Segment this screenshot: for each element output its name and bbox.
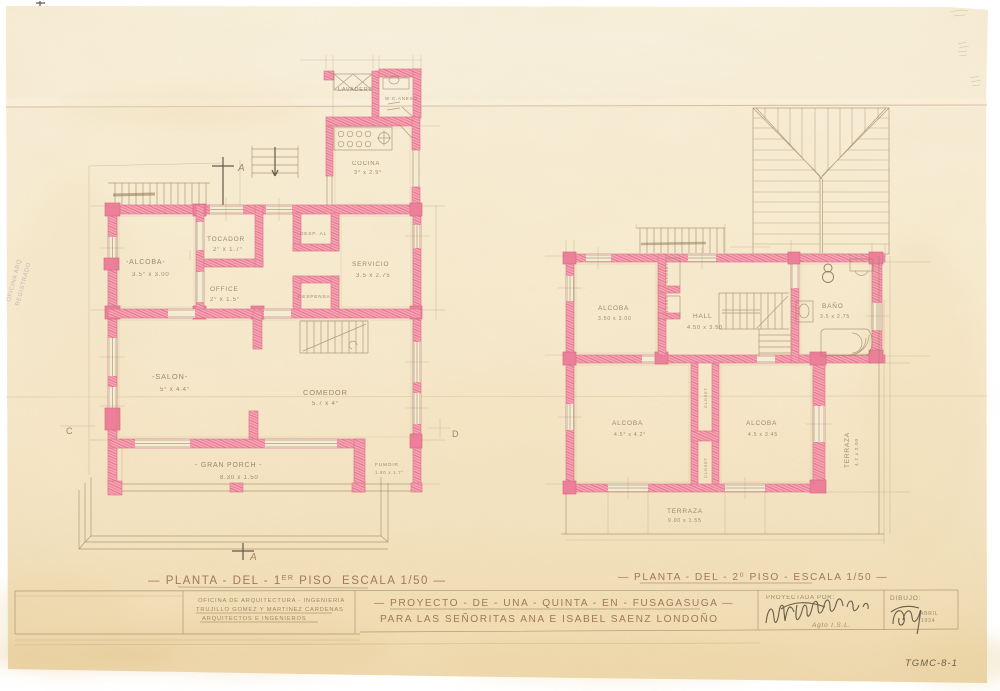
svg-text:9.00 x 1.55: 9.00 x 1.55	[668, 518, 702, 524]
svg-text:PARA LAS SEÑORITAS ANA E ISABE: PARA LAS SEÑORITAS ANA E ISABEL SAENZ LO…	[380, 612, 719, 625]
svg-text:2° x 1.7°: 2° x 1.7°	[213, 247, 243, 253]
svg-text:4.5 x 3.45: 4.5 x 3.45	[748, 432, 778, 438]
svg-text:SERVICIO: SERVICIO	[352, 261, 389, 268]
svg-text:CLOSET: CLOSET	[703, 387, 708, 408]
svg-text:2° x 1.5°: 2° x 1.5°	[210, 297, 240, 303]
svg-text:1934: 1934	[921, 618, 935, 624]
svg-text:HALL: HALL	[693, 313, 712, 320]
svg-text:TRUJILLO GOMEZ Y MARTINEZ CARD: TRUJILLO GOMEZ Y MARTINEZ CARDENAS	[196, 607, 344, 613]
svg-text:3.5° x 3.00: 3.5° x 3.00	[132, 272, 170, 278]
svg-text:PROYECTADA POR:: PROYECTADA POR:	[766, 595, 835, 601]
svg-text:COMEDOR: COMEDOR	[303, 388, 348, 397]
svg-text:Agto I.S.L.: Agto I.S.L.	[811, 622, 851, 629]
svg-text:— PLANTA - DEL - 1ER PISO ESC: — PLANTA - DEL - 1ER PISO ESCALA 1/50 —	[148, 575, 447, 587]
svg-text:ARQUITECTOS E INGENIEROS: ARQUITECTOS E INGENIEROS	[202, 616, 306, 622]
svg-text:ALCOBA: ALCOBA	[598, 305, 629, 312]
svg-text:4.50 x 3.50: 4.50 x 3.50	[687, 325, 723, 331]
svg-text:OFFICE: OFFICE	[210, 286, 239, 293]
svg-text:BAÑO: BAÑO	[822, 301, 844, 310]
svg-text:DESPENSA: DESPENSA	[298, 294, 331, 300]
svg-text:8.30 x 1.50: 8.30 x 1.50	[220, 475, 259, 481]
svg-text:5° x 4.4°: 5° x 4.4°	[160, 387, 190, 393]
svg-text:C: C	[66, 426, 73, 436]
svg-text:COCINA: COCINA	[352, 161, 380, 167]
svg-text:LAVADERO: LAVADERO	[338, 87, 374, 93]
svg-text:W.C.ANEXO: W.C.ANEXO	[385, 96, 418, 101]
svg-text:3.50 x 3.00: 3.50 x 3.00	[598, 316, 632, 322]
svg-text:5.7 x 4°: 5.7 x 4°	[312, 401, 339, 407]
svg-text:TERRAZA: TERRAZA	[667, 508, 703, 515]
svg-text:3° x 2.9°: 3° x 2.9°	[354, 170, 382, 176]
svg-text:DESP. AL: DESP. AL	[300, 231, 327, 237]
svg-text:CLOSET: CLOSET	[664, 295, 669, 316]
svg-text:CLOSET: CLOSET	[703, 457, 708, 478]
svg-text:4.7 x 2.00: 4.7 x 2.00	[854, 438, 859, 466]
svg-text:-SALON-: -SALON-	[152, 372, 188, 381]
svg-text:1.80 x 1.7°: 1.80 x 1.7°	[375, 470, 404, 475]
svg-text:A: A	[237, 163, 245, 174]
svg-text:4.5° x 4.2°: 4.5° x 4.2°	[614, 432, 646, 438]
svg-text:CLOSET: CLOSET	[664, 262, 669, 283]
svg-text:FUMOIR: FUMOIR	[375, 462, 399, 468]
svg-text:TGMC-8-1: TGMC-8-1	[905, 658, 958, 669]
svg-text:DIBUJO:: DIBUJO:	[890, 595, 921, 602]
svg-text:-ALCOBA-: -ALCOBA-	[126, 259, 165, 266]
svg-text:TOCADOR: TOCADOR	[207, 236, 245, 243]
svg-text:— PLANTA - DEL - 2⁰ PISO - ESC: — PLANTA - DEL - 2⁰ PISO - ESCALA 1/50 —	[618, 572, 888, 583]
svg-text:D: D	[452, 429, 459, 439]
svg-text:ABRIL: ABRIL	[920, 611, 938, 617]
svg-text:OFICINA DE ARQUITECTURA - INGE: OFICINA DE ARQUITECTURA - INGENIERIA	[198, 598, 345, 604]
svg-text:3.5 x 2.75: 3.5 x 2.75	[820, 314, 850, 320]
svg-text:TERRAZA: TERRAZA	[844, 432, 851, 468]
svg-text:- GRAN PORCH -: - GRAN PORCH -	[195, 462, 262, 469]
svg-text:ALCOBA: ALCOBA	[612, 420, 643, 427]
svg-text:A: A	[249, 552, 257, 563]
svg-text:3.5 x 2.75: 3.5 x 2.75	[356, 273, 390, 279]
svg-text:— PROYECTO - DE - UNA - QUINTA: — PROYECTO - DE - UNA - QUINTA - EN - FU…	[374, 598, 734, 609]
svg-text:ALCOBA: ALCOBA	[746, 420, 777, 427]
